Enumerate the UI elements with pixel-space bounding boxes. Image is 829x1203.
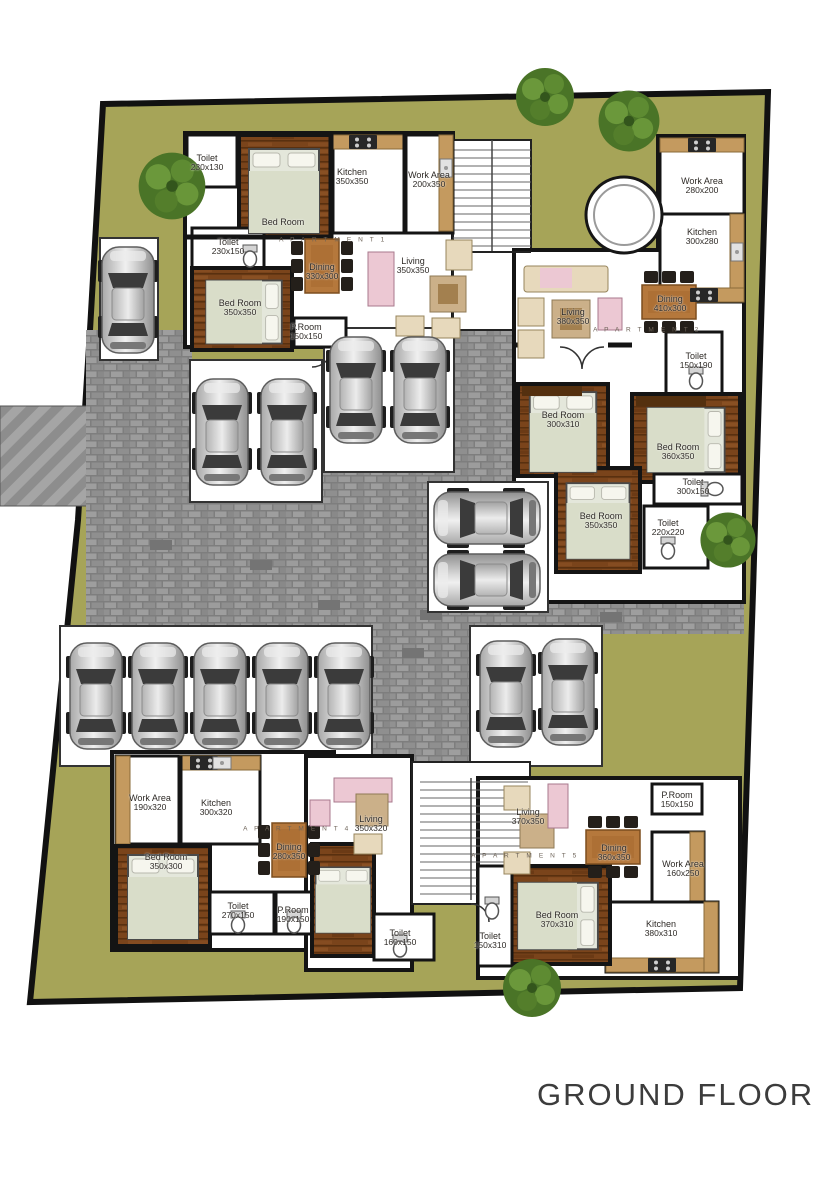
floor-plan-drawing	[0, 0, 829, 1203]
plan-title: GROUND FLOOR	[537, 1077, 814, 1113]
garden-circle	[586, 177, 662, 253]
floor-plan-canvas: Toilet230x130Bed RoomKitchen350x350Work …	[0, 0, 829, 1203]
